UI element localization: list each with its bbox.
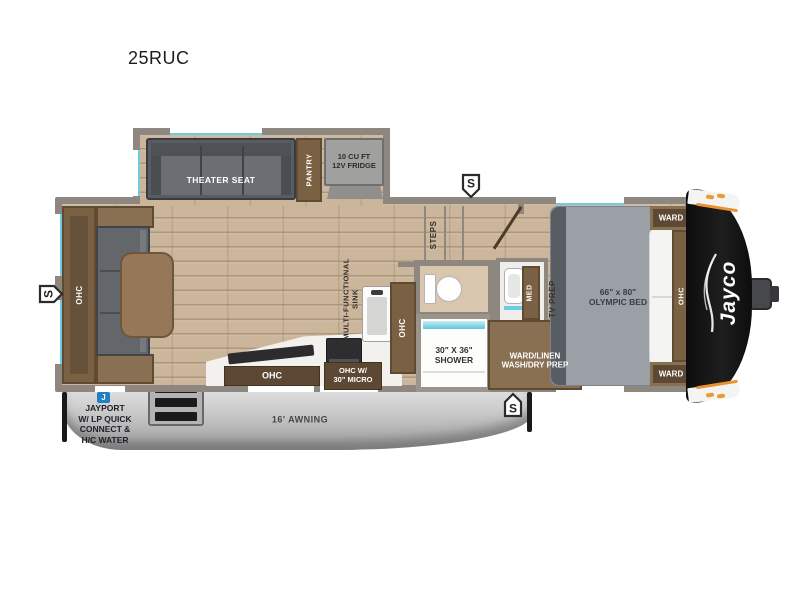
theater-seat-armrest <box>151 156 161 195</box>
sink-basin <box>367 297 387 335</box>
table <box>120 252 174 338</box>
kitchen-micro-label: OHC W/ 30" MICRO <box>334 367 373 385</box>
speaker-badge-letter: S <box>42 290 56 298</box>
multifunctional-sink-label: MULTI-FUNCTIONAL SINK <box>342 258 361 340</box>
ward-bottom-label: WARD <box>659 369 683 378</box>
slideout-window <box>170 128 262 135</box>
kitchen-ohc-label: OHC <box>262 371 282 382</box>
speaker-badge-letter: S <box>509 402 517 416</box>
theater-seat-backrest <box>151 143 291 156</box>
interior-step-line <box>462 206 464 262</box>
shower-label: 30" X 36" SHOWER <box>435 345 473 365</box>
speaker-badge-left: S <box>38 284 64 304</box>
slideout-side-window <box>133 150 140 196</box>
multifunctional-sink <box>362 286 392 342</box>
speaker-badge-bottom: S <box>503 392 523 418</box>
vanity-sink-basin <box>508 274 520 298</box>
ward-linen-label: WARD/LINEN WASH/DRY PREP <box>502 352 569 371</box>
bed-label: 66" x 80" OLYMPIC BED <box>589 287 647 307</box>
steps-label: STEPS <box>429 221 439 250</box>
bedroom-top-window <box>556 197 624 205</box>
fridge-door <box>327 186 383 199</box>
entry-step-tread <box>155 398 197 407</box>
tv-prep-label: TV PREP <box>548 280 558 318</box>
ward-top-label: WARD <box>659 213 683 222</box>
entry-step-tread <box>155 412 197 421</box>
toilet-bowl <box>436 276 462 302</box>
pantry-label: PANTRY <box>304 154 313 187</box>
rear-window <box>55 300 62 364</box>
awning-end-cap-left <box>62 392 67 442</box>
shower-glass <box>423 321 485 329</box>
med-cabinet-label: MED <box>527 284 536 301</box>
sofa-end-cabinet-bottom <box>96 354 154 384</box>
awning-label: 16' AWNING <box>272 415 328 426</box>
bedroom-ohc-label: OHC <box>676 287 685 305</box>
theater-seat-seam <box>200 146 202 195</box>
theater-seat-seam <box>242 146 244 195</box>
sink-faucet <box>371 290 383 295</box>
theater-seat <box>146 138 296 200</box>
jayport-badge: J <box>97 392 110 403</box>
vanity-accent <box>504 306 524 310</box>
speaker-badge-top: S <box>461 173 481 199</box>
kitchen-tall-ohc-label: OHC <box>398 318 408 337</box>
awning-end-cap-right <box>527 392 532 432</box>
fridge-label: 10 CU FT 12V FRIDGE <box>332 153 376 171</box>
jayport-label: JAYPORT W/ LP QUICK CONNECT & H/C WATER <box>78 403 131 446</box>
hitch-pin <box>770 286 779 302</box>
sofa-end-cabinet-top <box>96 206 154 228</box>
theater-seat-armrest <box>281 156 291 195</box>
vanity-sink <box>504 268 524 304</box>
shower-tray-line <box>423 371 485 373</box>
interior-step-line <box>424 206 426 262</box>
bottom-window <box>248 386 314 392</box>
jayco-logo: Jayco <box>716 261 742 326</box>
rear-ohc-label: OHC <box>75 285 85 304</box>
theater-seat-label: THEATER SEAT <box>187 175 256 185</box>
toilet-tank <box>424 274 436 304</box>
bottom-window <box>95 386 125 392</box>
jayport-badge-letter: J <box>101 393 105 402</box>
interior-step-line <box>444 206 446 262</box>
rear-window <box>55 214 62 276</box>
floorplan-canvas: 25RUC 16' AWNING J JAYPORT W/ LP QUICK C… <box>0 0 800 600</box>
floorplan-model-title: 25RUC <box>128 48 190 69</box>
speaker-badge-letter: S <box>467 177 475 191</box>
